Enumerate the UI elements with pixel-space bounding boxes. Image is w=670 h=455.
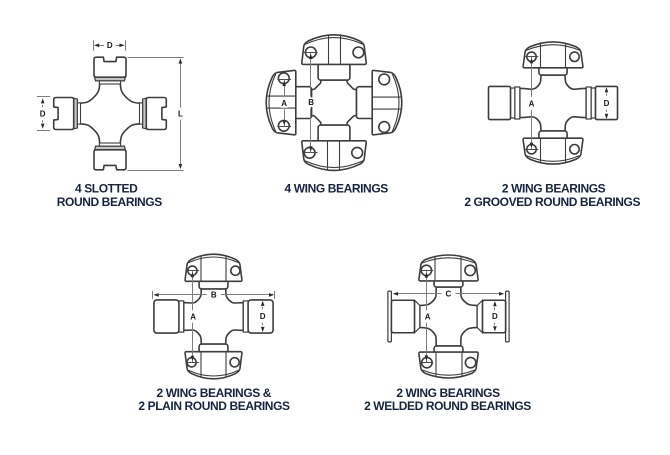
svg-text:2 WELDED ROUND BEARINGS: 2 WELDED ROUND BEARINGS	[364, 399, 531, 413]
svg-text:4 WING BEARINGS: 4 WING BEARINGS	[285, 181, 389, 195]
svg-text:2 WING BEARINGS &: 2 WING BEARINGS &	[157, 386, 272, 400]
svg-text:B: B	[211, 291, 217, 300]
svg-text:D: D	[107, 41, 113, 50]
svg-text:A: A	[190, 312, 196, 321]
svg-text:D: D	[40, 110, 46, 119]
svg-text:A: A	[529, 99, 535, 108]
svg-text:2 WING BEARINGS: 2 WING BEARINGS	[396, 386, 500, 400]
svg-text:ROUND BEARINGS: ROUND BEARINGS	[57, 195, 162, 209]
svg-text:L: L	[178, 110, 183, 119]
svg-text:C: C	[446, 290, 452, 299]
svg-text:2 WING BEARINGS: 2 WING BEARINGS	[502, 181, 606, 195]
svg-text:D: D	[604, 99, 610, 108]
svg-text:A: A	[425, 312, 431, 321]
svg-text:B: B	[308, 98, 314, 107]
svg-text:A: A	[281, 99, 287, 108]
svg-text:4 SLOTTED: 4 SLOTTED	[75, 181, 138, 195]
svg-text:2 PLAIN ROUND BEARINGS: 2 PLAIN ROUND BEARINGS	[138, 399, 290, 413]
svg-text:D: D	[260, 312, 266, 321]
svg-text:2 GROOVED ROUND BEARINGS: 2 GROOVED ROUND BEARINGS	[464, 195, 640, 209]
svg-text:D: D	[492, 312, 498, 321]
